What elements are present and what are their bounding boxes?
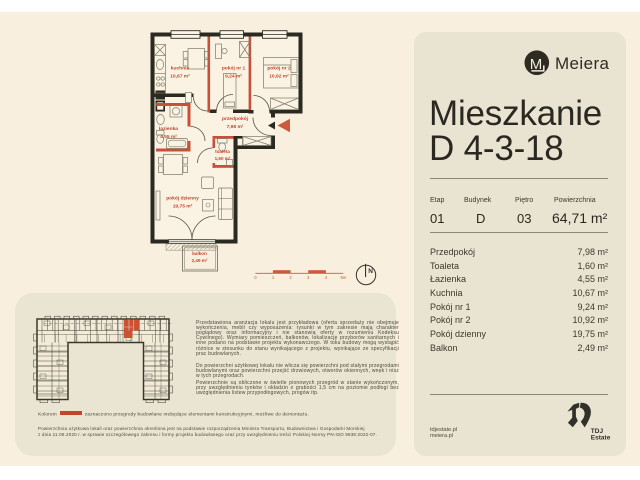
svg-text:Estate: Estate (591, 435, 611, 442)
